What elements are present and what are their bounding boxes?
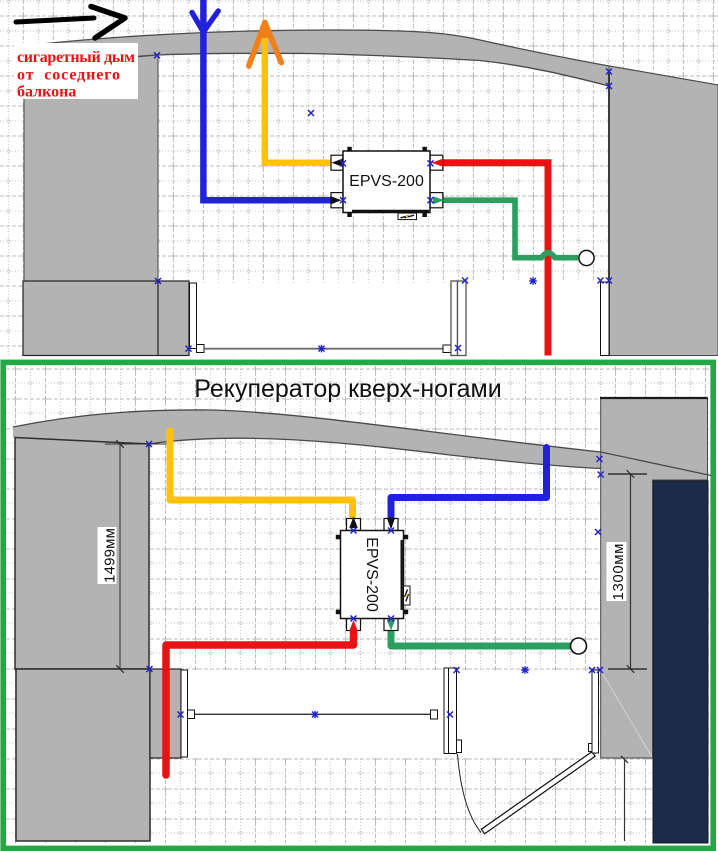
svg-text:сигаретный дым: сигаретный дым	[17, 49, 135, 66]
svg-text:Рекуператор кверх-ногами: Рекуператор кверх-ногами	[194, 375, 501, 403]
svg-text:EPVS-200: EPVS-200	[363, 537, 380, 612]
svg-text:1300мм: 1300мм	[610, 544, 627, 601]
svg-text:EPVS-200: EPVS-200	[349, 173, 424, 190]
svg-text:балкона: балкона	[17, 84, 76, 101]
svg-text:от соседнего: от соседнего	[17, 66, 120, 83]
svg-text:1499мм: 1499мм	[102, 528, 119, 583]
